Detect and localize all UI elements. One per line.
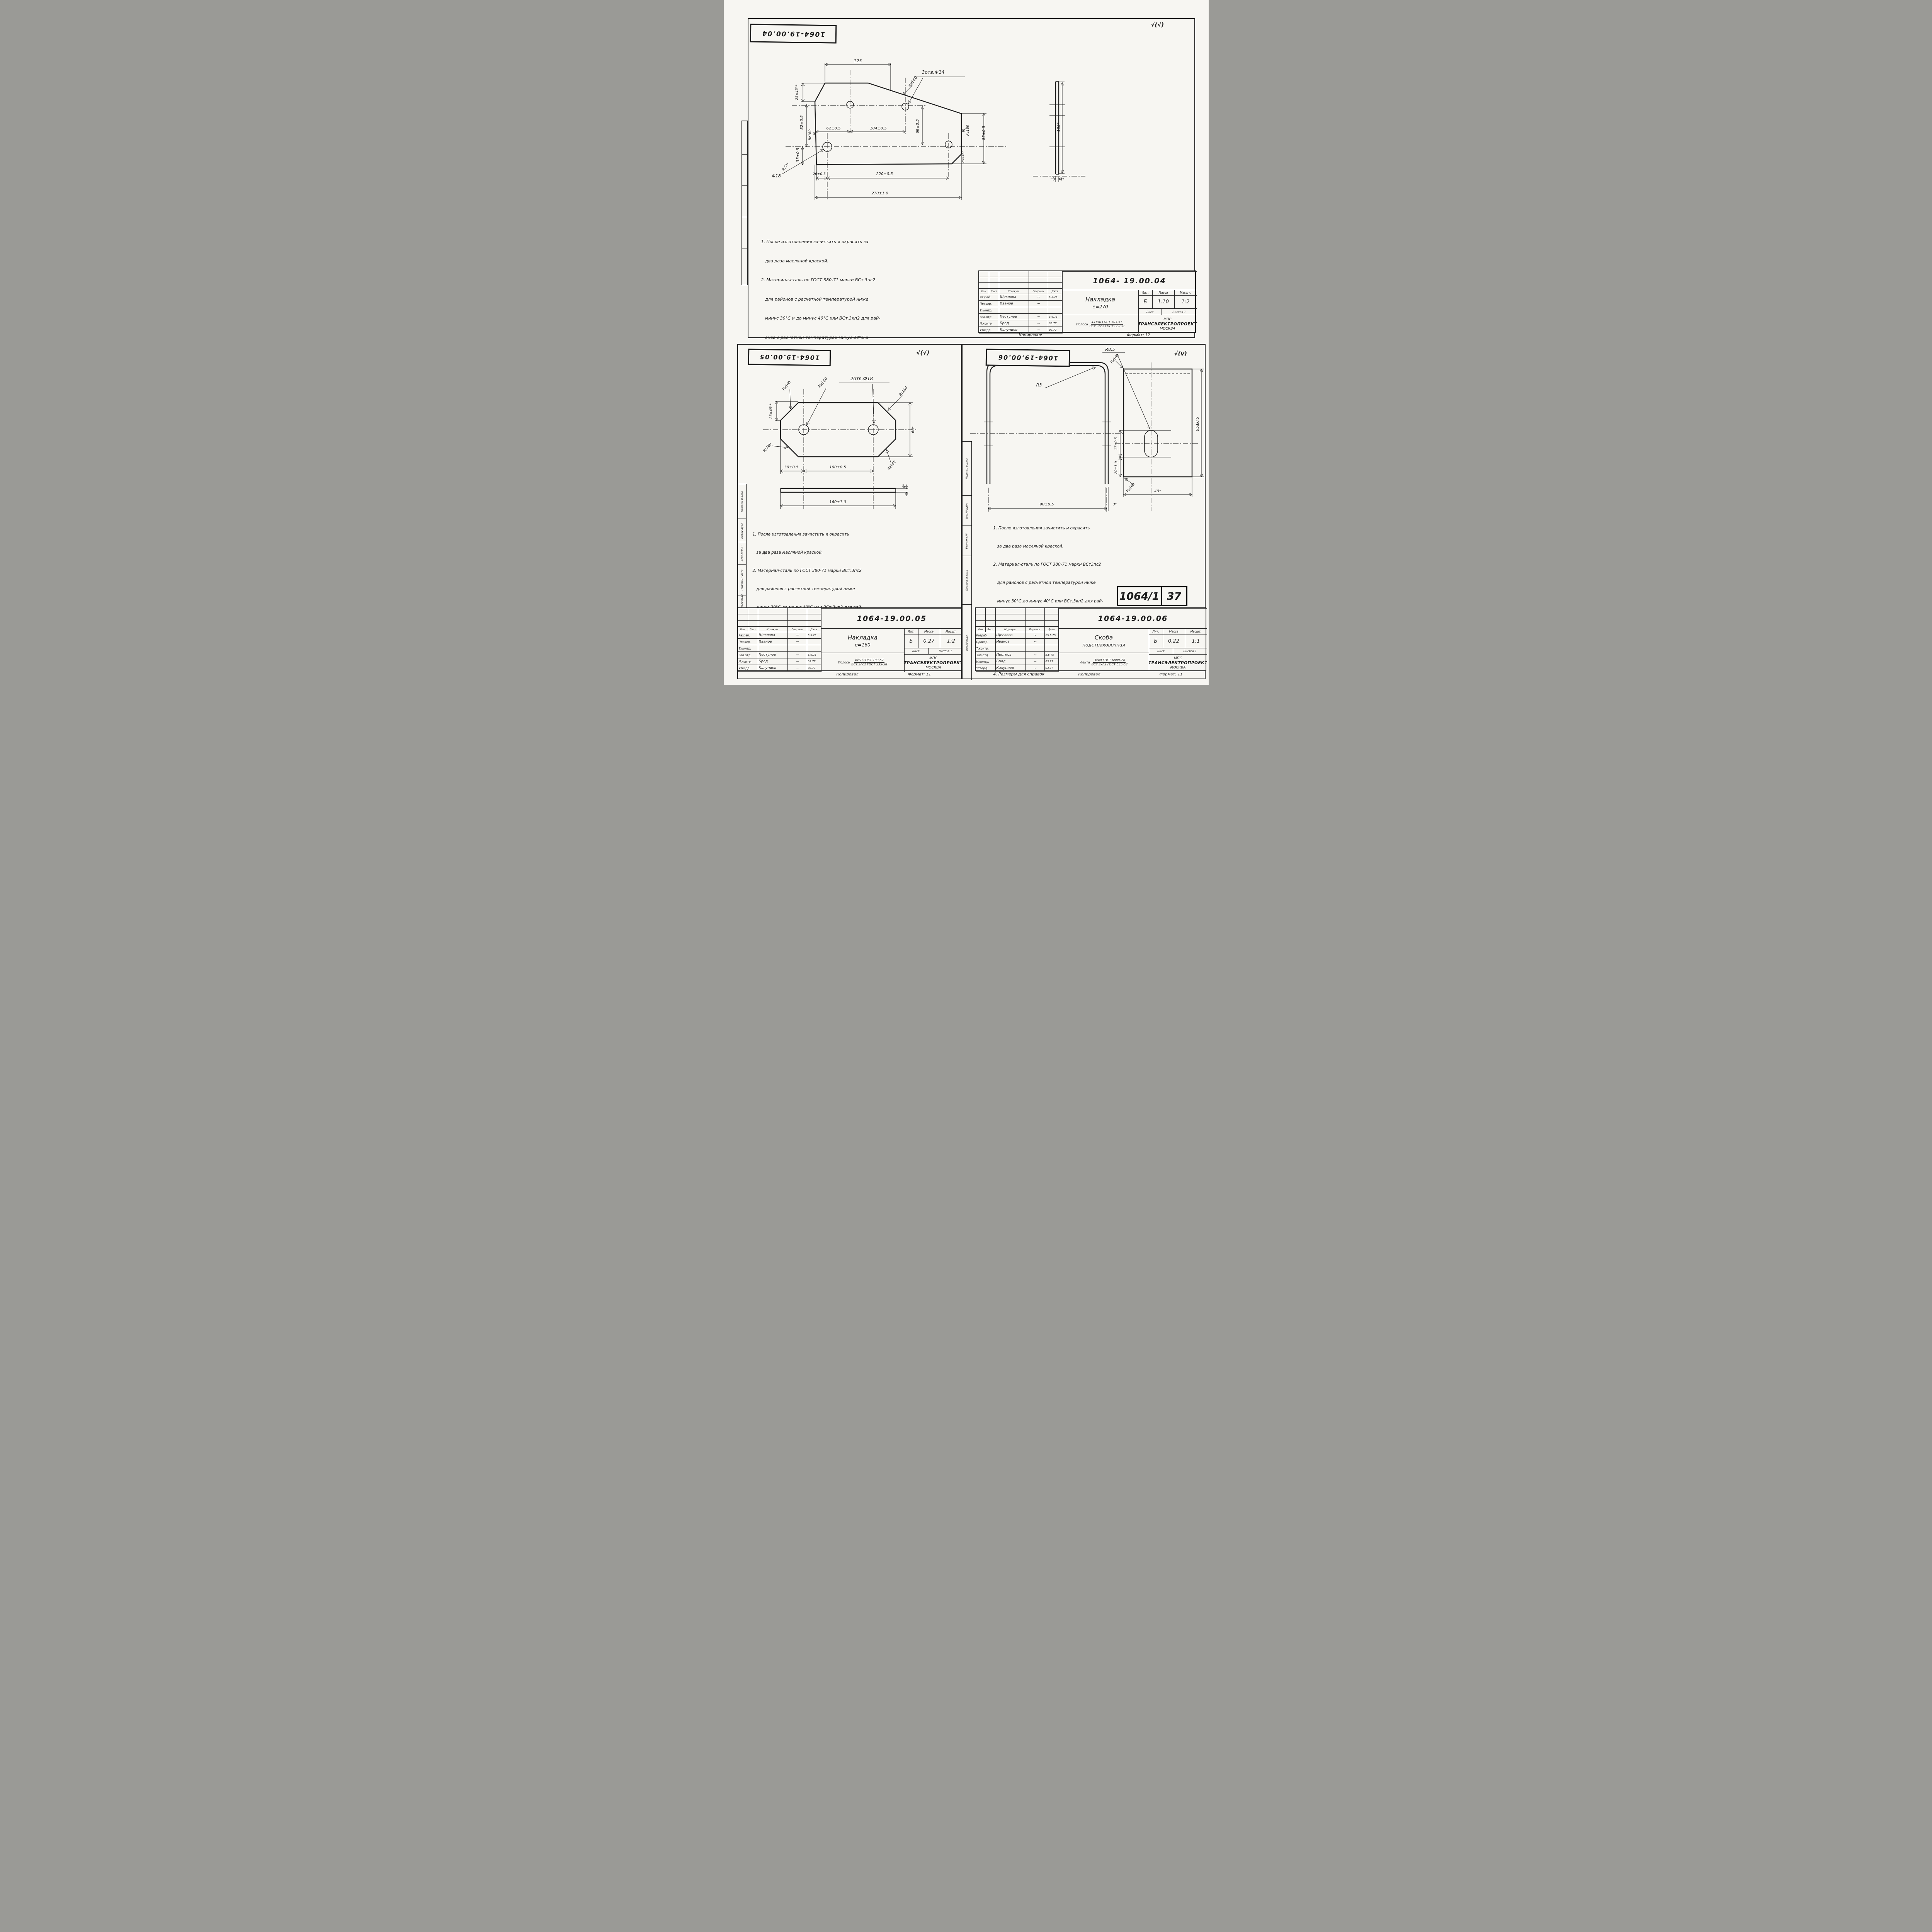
doc-number-cell: 1064-19.00.05 bbox=[821, 608, 963, 628]
front-view bbox=[763, 383, 918, 509]
dim-label: Rz160 bbox=[966, 125, 970, 136]
staff-cell bbox=[758, 608, 788, 614]
surface-finish-mark: √(√) bbox=[917, 349, 930, 356]
sheet-label: Лист bbox=[1149, 648, 1173, 654]
staff-date: 03.77 bbox=[807, 658, 821, 665]
staff-cell bbox=[758, 621, 788, 627]
staff-name: Брод bbox=[996, 658, 1026, 665]
surface-finish-mark: √(√) bbox=[1151, 21, 1164, 28]
dim-label: Rz160 bbox=[808, 129, 812, 140]
note-line: 2. Материал-сталь по ГОСТ 380-71 марки В… bbox=[753, 568, 862, 574]
staff-date: 5.5.75 bbox=[807, 632, 821, 639]
staff-date bbox=[1048, 301, 1062, 307]
side-view bbox=[1102, 352, 1204, 511]
staff-cell bbox=[1029, 283, 1048, 289]
staff-role: Утверд. bbox=[979, 327, 999, 333]
front-view bbox=[970, 362, 1125, 512]
dim-label: 30±0.5 bbox=[784, 465, 798, 469]
staff-cell bbox=[807, 614, 821, 621]
staff-col-header: Лист bbox=[989, 289, 999, 294]
inventory-strip: Подпись и дата Инв.N°дубл. Взам.инв.N° П… bbox=[963, 441, 972, 680]
staff-col-header: Подпись bbox=[788, 627, 807, 632]
dim-label: 25×45°* bbox=[769, 403, 773, 419]
staff-cell bbox=[976, 608, 986, 614]
staff-cell bbox=[1026, 608, 1045, 614]
organization-cell: МПС ТРАНСЭЛЕКТРОПРОЕКТ МОСКВА bbox=[904, 654, 963, 672]
note-line: для районов с расчетной температурой ниж… bbox=[761, 296, 881, 303]
staff-role: Т.контр. bbox=[738, 645, 758, 652]
staff-role: Зав.отд. bbox=[738, 652, 758, 658]
staff-table: ИзмЛистN°докум.ПодписьДатаРазраб.Щеглова… bbox=[979, 271, 1062, 333]
dim-label: 26±0.5 bbox=[813, 172, 826, 176]
note-line: за два раза масляной краской. bbox=[753, 550, 862, 556]
staff-signature: ~ bbox=[1029, 320, 1048, 327]
dim-label: R8.5 bbox=[1105, 347, 1115, 352]
mass-value: 0,22 bbox=[1163, 634, 1185, 648]
dim-label: 82±0.5 bbox=[800, 115, 804, 129]
staff-role: Н.контр. bbox=[979, 320, 999, 327]
note-line: за два раза масляной краской. bbox=[993, 544, 1103, 550]
material-cell: Полоса 4х60 ГОСТ 103-57ВСт.3пс2 ГОСТ 535… bbox=[821, 653, 904, 672]
kopiroval-label: Копировал bbox=[1078, 672, 1100, 677]
staff-signature: ~ bbox=[1029, 327, 1048, 333]
staff-signature: ~ bbox=[1029, 294, 1048, 301]
staff-cell bbox=[979, 277, 989, 283]
sheet-1064-19-00-04: 1253отв.Ф14Rz16025×45°*82±0.5Rz16035±0.5… bbox=[748, 18, 1195, 338]
staff-cell bbox=[1029, 277, 1048, 283]
staff-signature: ~ bbox=[788, 652, 807, 658]
staff-role: Утверд. bbox=[738, 665, 758, 672]
staff-cell bbox=[999, 283, 1029, 289]
staff-cell bbox=[807, 621, 821, 627]
note-line: для районов с расчетной температурой ниж… bbox=[753, 586, 862, 592]
staff-cell bbox=[986, 614, 996, 621]
strip-label: Взам.инв.N° bbox=[740, 545, 743, 561]
strip-label: Подпись и дата bbox=[965, 570, 968, 591]
doc-number-stamp: 1064-19.00.05 bbox=[748, 349, 831, 366]
staff-signature: ~ bbox=[1026, 632, 1045, 639]
dim-label: 17±0.5 bbox=[1114, 437, 1118, 450]
staff-date: 03.77 bbox=[1045, 658, 1059, 665]
staff-role: Разраб. bbox=[979, 294, 999, 301]
dim-label: Rz160 bbox=[1126, 483, 1136, 493]
staff-name bbox=[999, 307, 1029, 314]
staff-signature: ~ bbox=[788, 665, 807, 672]
staff-date: 5.6.75 bbox=[807, 652, 821, 658]
note-line: минус 30°С до минус 40°С или ВСт.3кп2 дл… bbox=[993, 599, 1103, 605]
staff-signature bbox=[1029, 307, 1048, 314]
dim-label: 130* bbox=[1057, 122, 1061, 132]
staff-role: Утверд. bbox=[976, 665, 996, 672]
dim-label: 100±0.5 bbox=[829, 465, 846, 469]
dim-label: 4* bbox=[1060, 178, 1064, 182]
scale-label: Масшт. bbox=[1174, 290, 1197, 295]
strip-label: Инв.N°дубл. bbox=[740, 522, 743, 539]
lit-value: Б bbox=[1149, 634, 1163, 648]
staff-cell bbox=[1045, 621, 1059, 627]
staff-role: Провер. bbox=[738, 639, 758, 645]
format-label: Формат: 11 bbox=[908, 672, 931, 677]
staff-col-header: Лист bbox=[986, 627, 996, 632]
staff-cell bbox=[989, 283, 999, 289]
dim-label: 25×45°* bbox=[795, 85, 799, 100]
mass-value: 0.27 bbox=[918, 634, 940, 648]
dim-label: 3отв.Ф14 bbox=[922, 70, 944, 75]
border-column bbox=[742, 121, 748, 285]
staff-col-header: Дата bbox=[1045, 627, 1059, 632]
staff-cell bbox=[1026, 621, 1045, 627]
dim-label: Rz160 bbox=[782, 381, 792, 391]
mass-label: Масса bbox=[918, 628, 940, 634]
dim-label: 104±0.5 bbox=[870, 126, 886, 131]
dim-label: 270±1.0 bbox=[871, 191, 888, 196]
mass-label: Масса bbox=[1163, 628, 1185, 634]
strip-label: Подпись и дата bbox=[965, 458, 968, 479]
staff-role: Т.контр. bbox=[976, 645, 996, 652]
lit-label: Лит. bbox=[904, 628, 918, 634]
staff-date bbox=[807, 645, 821, 652]
note-line: два раза масляной краской. bbox=[761, 258, 881, 265]
dimension-labels: Rz160Rz1602отв.Ф18Rz16025×45°*Rz160Rz160… bbox=[762, 376, 915, 504]
dim-label: R3 bbox=[1036, 383, 1042, 388]
staff-name: Щеглова bbox=[999, 294, 1029, 301]
staff-cell bbox=[979, 283, 989, 289]
staff-cell bbox=[976, 614, 986, 621]
title-block: ИзмЛистN°докум.ПодписьДатаРазраб.Щеглова… bbox=[978, 270, 1196, 333]
staff-cell bbox=[989, 277, 999, 283]
sheet-1064-19-00-05: Rz160Rz1602отв.Ф18Rz16025×45°*Rz160Rz160… bbox=[737, 344, 962, 679]
staff-name: Иванов bbox=[996, 639, 1026, 645]
dim-label: Rz160 bbox=[887, 460, 897, 471]
staff-name bbox=[996, 645, 1026, 652]
staff-signature: ~ bbox=[788, 658, 807, 665]
staff-table: ИзмЛистN°докум.ПодписьДатаРазраб.Щеглова… bbox=[738, 608, 821, 672]
staff-name: Щеглова bbox=[758, 632, 788, 639]
staff-cell bbox=[788, 621, 807, 627]
index-left: 1064/1 bbox=[1118, 587, 1162, 605]
staff-cell bbox=[788, 614, 807, 621]
staff-cell bbox=[1045, 608, 1059, 614]
staff-signature: ~ bbox=[1026, 652, 1045, 658]
strip-label: Подпись и дата bbox=[740, 570, 743, 590]
staff-cell bbox=[738, 621, 748, 627]
dim-label: 3* bbox=[1112, 503, 1117, 507]
sheets-label: Листов 1 bbox=[1173, 648, 1207, 654]
organization-cell: МПС ТРАНСЭЛЕКТРОПРОЕКТ МОСКВА bbox=[1149, 654, 1207, 672]
staff-role: Т.контр. bbox=[979, 307, 999, 314]
staff-cell bbox=[989, 271, 999, 277]
staff-cell bbox=[976, 621, 986, 627]
staff-cell bbox=[1048, 277, 1062, 283]
staff-date: 5.6.75 bbox=[1045, 652, 1059, 658]
staff-cell bbox=[758, 614, 788, 621]
dim-label: 62±0.5 bbox=[826, 126, 840, 131]
staff-cell bbox=[1029, 271, 1048, 277]
staff-col-header: Лист bbox=[748, 627, 758, 632]
staff-col-header: Дата bbox=[1048, 289, 1062, 294]
staff-cell bbox=[748, 621, 758, 627]
lit-label: Лит. bbox=[1149, 628, 1163, 634]
staff-table: ИзмЛистN°докум.ПодписьДатаРазраб.Щеглова… bbox=[976, 608, 1059, 672]
note-line: 2. Материал-сталь по ГОСТ 380-71 марки В… bbox=[993, 562, 1103, 568]
staff-date: 5.5.75 bbox=[1048, 294, 1062, 301]
staff-cell bbox=[1048, 283, 1062, 289]
scale-label: Масшт. bbox=[1185, 628, 1207, 634]
staff-signature: ~ bbox=[1026, 639, 1045, 645]
staff-cell bbox=[999, 271, 1029, 277]
format-label: Формат: 11 bbox=[1160, 672, 1183, 677]
lit-value: Б bbox=[1138, 295, 1152, 308]
staff-col-header: Изм bbox=[979, 289, 989, 294]
kopiroval-label: Копировал bbox=[837, 672, 859, 677]
doc-number-stamp: 1064-19.00.04 bbox=[750, 24, 837, 43]
staff-signature: ~ bbox=[1026, 665, 1045, 672]
staff-col-header: N°докум. bbox=[999, 289, 1029, 294]
title-block: ИзмЛистN°докум.ПодписьДатаРазраб.Щеглова… bbox=[975, 607, 1206, 671]
staff-cell bbox=[748, 608, 758, 614]
staff-signature: ~ bbox=[1026, 658, 1045, 665]
staff-name: Калуниев bbox=[999, 327, 1029, 333]
staff-date: 03.77 bbox=[1048, 320, 1062, 327]
staff-name: Пестунов bbox=[999, 314, 1029, 320]
dim-label: 35±0.5 bbox=[796, 148, 800, 162]
scanned-drawing-sheet: 1253отв.Ф14Rz16025×45°*82±0.5Rz16035±0.5… bbox=[724, 0, 1209, 685]
staff-name: Щеглова bbox=[996, 632, 1026, 639]
part-name-cell: Накладка e=270 bbox=[1062, 290, 1138, 315]
mass-label: Масса bbox=[1152, 290, 1174, 295]
doc-number-stamp-text: 1064-19.00.06 bbox=[997, 354, 1058, 362]
note-line: минус 30°С и до минус 40°С или ВСт.3кп2 … bbox=[761, 315, 881, 322]
mass-value: 1.10 bbox=[1152, 295, 1174, 308]
staff-cell bbox=[807, 608, 821, 614]
part-name-cell: Накладка e=160 bbox=[821, 628, 904, 653]
staff-role: Провер. bbox=[976, 639, 996, 645]
staff-name bbox=[758, 645, 788, 652]
staff-col-header: Дата bbox=[807, 627, 821, 632]
strip-label: Взам.инв.N° bbox=[965, 533, 968, 549]
staff-date: 03.77 bbox=[1045, 665, 1059, 672]
front-view bbox=[782, 63, 1007, 200]
kopiroval-label: Копировал: bbox=[1019, 333, 1043, 337]
staff-cell bbox=[1045, 614, 1059, 621]
strip-label: Инв.N°подл. bbox=[965, 634, 968, 650]
staff-cell bbox=[1048, 271, 1062, 277]
dim-label: Ф18 bbox=[772, 173, 781, 179]
staff-cell bbox=[738, 614, 748, 621]
doc-number-stamp-text: 1064-19.00.05 bbox=[759, 353, 819, 361]
staff-cell bbox=[748, 614, 758, 621]
doc-number-cell: 1064- 19.00.04 bbox=[1062, 271, 1197, 290]
strip-label: Подпись и дата bbox=[740, 491, 743, 512]
side-view bbox=[781, 485, 908, 509]
staff-signature: ~ bbox=[1029, 301, 1048, 307]
material-cell: Лента 3х40 ГОСТ 6009-74ВСт.3кп2 ГОСТ 535… bbox=[1059, 653, 1149, 672]
staff-col-header: N°докум. bbox=[996, 627, 1026, 632]
doc-number-stamp-text: 1064-19.00.04 bbox=[761, 29, 825, 38]
staff-name: Иванов bbox=[758, 639, 788, 645]
staff-col-header: Подпись bbox=[1026, 627, 1045, 632]
note-line: онов с расчетной температурой минус 30°С… bbox=[761, 335, 881, 341]
dim-label: 60* bbox=[911, 426, 915, 433]
scale-value: 1:2 bbox=[940, 634, 963, 648]
staff-signature: ~ bbox=[788, 632, 807, 639]
staff-date: 03.77 bbox=[1048, 327, 1062, 333]
staff-cell bbox=[996, 608, 1026, 614]
dim-label: Rz160 bbox=[1110, 354, 1120, 364]
staff-date: 5.6.75 bbox=[1048, 314, 1062, 320]
staff-date: 03.77 bbox=[807, 665, 821, 672]
staff-role: Разраб. bbox=[738, 632, 758, 639]
staff-role: Провер. bbox=[979, 301, 999, 307]
note-line: 2. Материал-сталь по ГОСТ 380-71 марки В… bbox=[761, 277, 881, 284]
staff-role: Зав.отд. bbox=[976, 652, 996, 658]
inventory-strip: Подпись и дата Инв.N°дубл. Взам.инв.N° П… bbox=[738, 484, 747, 607]
dimension-labels: R390±0.53*R8.5Rz16017±0.520±1.095±0.5Rz1… bbox=[1036, 347, 1199, 507]
staff-date bbox=[1048, 307, 1062, 314]
staff-cell bbox=[1026, 614, 1045, 621]
sheet-label: Лист bbox=[1138, 308, 1162, 315]
staff-cell bbox=[996, 614, 1026, 621]
dim-label: Rz160 bbox=[762, 442, 772, 453]
staff-date bbox=[1045, 639, 1059, 645]
surface-finish-mark: √(v) bbox=[1174, 350, 1187, 357]
staff-cell bbox=[999, 277, 1029, 283]
part-name-cell: Скоба подстраховочная bbox=[1059, 628, 1149, 653]
dim-label: 2отв.Ф18 bbox=[850, 376, 873, 381]
staff-role: Зав.отд. bbox=[979, 314, 999, 320]
staff-date: 25.5.75 bbox=[1045, 632, 1059, 639]
staff-name: Калуниев bbox=[758, 665, 788, 672]
staff-cell bbox=[738, 608, 748, 614]
staff-col-header: Подпись bbox=[1029, 289, 1048, 294]
note-line: 1. После изготовления зачистить и окраси… bbox=[761, 239, 881, 245]
staff-cell bbox=[788, 608, 807, 614]
staff-role: Разраб. bbox=[976, 632, 996, 639]
dim-label: 95±0.5 bbox=[1196, 417, 1200, 431]
staff-role: Н.контр. bbox=[976, 658, 996, 665]
staff-cell bbox=[979, 271, 989, 277]
sheet-1064-19-00-06: R390±0.53*R8.5Rz16017±0.520±1.095±0.5Rz1… bbox=[962, 344, 1206, 679]
lit-label: Лит. bbox=[1138, 290, 1152, 295]
staff-cell bbox=[996, 621, 1026, 627]
note-line: 1. После изготовления зачистить и окраси… bbox=[753, 532, 862, 538]
doc-number-cell: 1064-19.00.06 bbox=[1059, 608, 1207, 628]
dim-label: Rz160 bbox=[908, 76, 918, 88]
note-line: для районов с расчетной температурой ниж… bbox=[993, 580, 1103, 586]
dim-label: 69±0.5 bbox=[916, 119, 920, 133]
dim-label: 90±0.5 bbox=[1039, 502, 1054, 507]
staff-name: Брод bbox=[758, 658, 788, 665]
staff-name: Брод bbox=[999, 320, 1029, 327]
dim-label: Rz160 bbox=[898, 386, 908, 397]
dim-label: 25×45° bbox=[961, 151, 965, 163]
staff-role: Н.контр. bbox=[738, 658, 758, 665]
staff-col-header: N°докум. bbox=[758, 627, 788, 632]
dim-label: 160±1.0 bbox=[829, 500, 846, 504]
staff-date bbox=[807, 639, 821, 645]
sheets-label: Листов 1 bbox=[1162, 308, 1197, 315]
index-right: 37 bbox=[1162, 587, 1186, 605]
dim-label: 85±0.5 bbox=[982, 126, 986, 140]
staff-cell bbox=[986, 608, 996, 614]
staff-signature bbox=[1026, 645, 1045, 652]
staff-name: Калуниев bbox=[996, 665, 1026, 672]
dim-label: 4* bbox=[902, 484, 906, 488]
strip-label: Инв.N°дубл. bbox=[965, 503, 968, 519]
lit-value: Б bbox=[904, 634, 918, 648]
dim-label: 40* bbox=[1154, 489, 1161, 493]
dim-label: 220±0.5 bbox=[876, 172, 893, 176]
sheet-label: Лист· bbox=[904, 648, 928, 654]
staff-name: Пестнов bbox=[996, 652, 1026, 658]
staff-name: Иванов bbox=[999, 301, 1029, 307]
staff-date bbox=[1045, 645, 1059, 652]
dim-label: 125 bbox=[854, 58, 862, 63]
scale-label: Масшт. bbox=[940, 628, 963, 634]
staff-signature: ~ bbox=[1029, 314, 1048, 320]
doc-number-stamp: 1064-19.00.06 bbox=[985, 349, 1070, 367]
material-cell: Полоса 4х150 ГОСТ 103-57ВСт.3пс2 ГОСТ535… bbox=[1062, 315, 1138, 333]
organization-cell: МПС ТРАНСЭЛЕКТРОПРОЕКТ МОСКВА bbox=[1138, 315, 1197, 333]
dim-label: Rz160 bbox=[817, 377, 828, 389]
staff-col-header: Изм bbox=[738, 627, 748, 632]
staff-signature bbox=[788, 645, 807, 652]
staff-cell bbox=[986, 621, 996, 627]
drawing-index-stamp: 1064/1 37 bbox=[1117, 586, 1187, 606]
format-label: Формат: 12 bbox=[1127, 333, 1150, 337]
scale-value: 1:1 bbox=[1185, 634, 1207, 648]
note-line: 1. После изготовления зачистить и окраси… bbox=[993, 526, 1103, 532]
staff-name: Пестунов bbox=[758, 652, 788, 658]
title-block: ИзмЛистN°докум.ПодписьДатаРазраб.Щеглова… bbox=[737, 607, 962, 671]
staff-signature: ~ bbox=[788, 639, 807, 645]
dim-label: 20±1.0 bbox=[1114, 461, 1118, 474]
staff-col-header: Изм bbox=[976, 627, 986, 632]
scale-value: 1:2 bbox=[1174, 295, 1197, 308]
sheets-label: Листов 1 bbox=[928, 648, 963, 654]
